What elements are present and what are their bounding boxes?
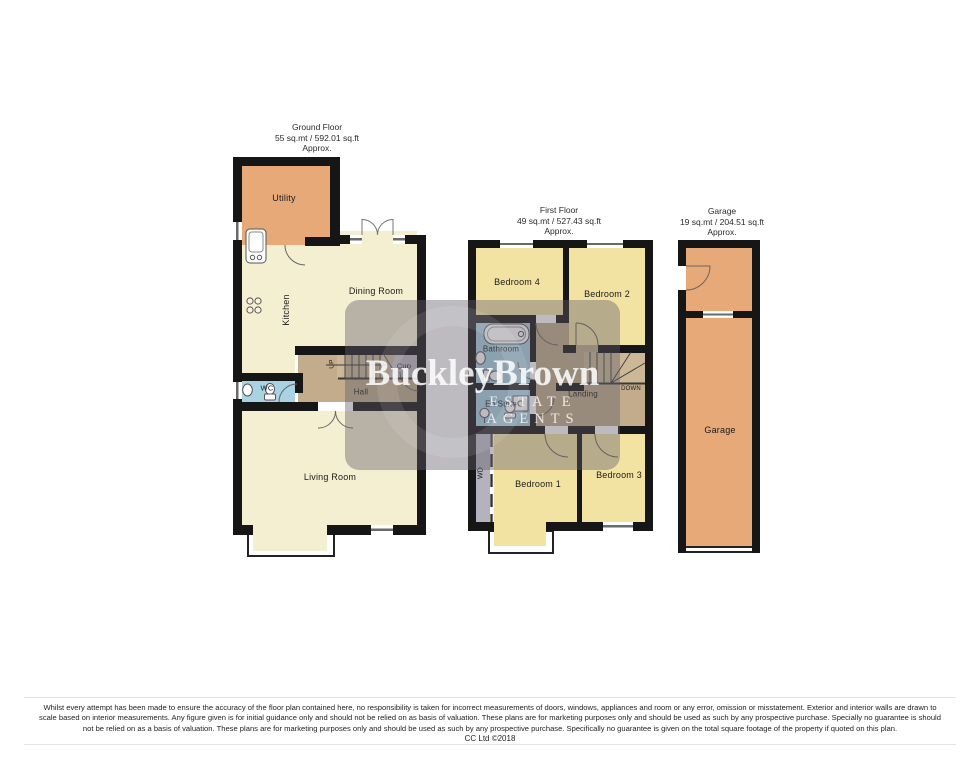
wall <box>752 240 760 553</box>
garage-title-area: 19 sq.mt / 204.51 sq.ft <box>636 217 808 228</box>
window <box>603 522 633 531</box>
wall <box>335 235 350 244</box>
label-living-room: Living Room <box>304 472 356 482</box>
garage-title: Garage 19 sq.mt / 204.51 sq.ft Approx. <box>636 206 808 238</box>
window <box>233 222 242 240</box>
label-bedroom-3: Bedroom 3 <box>596 470 642 480</box>
label-kitchen: Kitchen <box>281 294 291 325</box>
wall <box>233 157 242 535</box>
divider-bottom <box>24 744 956 745</box>
disclaimer-line-1: Whilst every attempt has been made to en… <box>0 703 980 713</box>
room-kitchen-lower <box>242 346 295 373</box>
label-utility: Utility <box>272 193 295 203</box>
garage-door <box>686 546 752 553</box>
garage-side-door-gap <box>678 266 686 290</box>
first-floor-title-approx: Approx. <box>473 226 645 237</box>
label-up: UP <box>329 359 336 368</box>
watermark-tagline: ESTATE AGENTS <box>440 394 626 428</box>
wall <box>645 240 653 531</box>
window <box>233 382 242 399</box>
garage-store <box>686 248 752 311</box>
label-dining-room: Dining Room <box>349 286 403 296</box>
first-floor-title-name: First Floor <box>473 205 645 216</box>
wall <box>233 402 318 411</box>
watermark-brand: BuckleyBrown <box>345 352 620 395</box>
label-down: DOWN <box>621 386 641 392</box>
window <box>587 240 623 248</box>
first-bay-floor <box>494 522 546 546</box>
ground-floor-title-area: 55 sq.mt / 592.01 sq.ft <box>231 133 403 144</box>
disclaimer-line-3: not be relied on as a basis of valuation… <box>0 724 980 734</box>
wall <box>295 373 303 393</box>
first-floor-title-area: 49 sq.mt / 527.43 sq.ft <box>473 216 645 227</box>
label-bedroom-1: Bedroom 1 <box>515 479 561 489</box>
label-bedroom-2: Bedroom 2 <box>584 289 630 299</box>
ground-floor-title-name: Ground Floor <box>231 122 403 133</box>
window <box>350 235 362 244</box>
ground-bay-floor <box>253 525 327 551</box>
label-bedroom-4: Bedroom 4 <box>494 277 540 287</box>
room-utility <box>242 166 330 245</box>
window <box>393 235 405 244</box>
disclaimer: Whilst every attempt has been made to en… <box>0 703 980 745</box>
first-floor-title: First Floor 49 sq.mt / 527.43 sq.ft Appr… <box>473 205 645 237</box>
wall <box>242 373 302 381</box>
window <box>500 240 533 248</box>
ground-floor-title: Ground Floor 55 sq.mt / 592.01 sq.ft App… <box>231 122 403 154</box>
divider-top <box>24 697 956 698</box>
agency-watermark: BuckleyBrown ESTATE AGENTS <box>345 300 620 470</box>
garage-title-name: Garage <box>636 206 808 217</box>
wall <box>678 240 760 248</box>
wall <box>468 240 653 248</box>
window <box>703 311 733 318</box>
floorplan-page: Ground Floor 55 sq.mt / 592.01 sq.ft App… <box>0 0 980 769</box>
window <box>371 525 393 535</box>
garage-title-approx: Approx. <box>636 227 808 238</box>
ground-floor-title-approx: Approx. <box>231 143 403 154</box>
wall <box>330 157 340 245</box>
wall <box>233 157 340 166</box>
disclaimer-line-2: scale based on interior measurements. An… <box>0 713 980 723</box>
label-wc: WC <box>261 384 274 393</box>
label-garage: Garage <box>704 425 735 435</box>
